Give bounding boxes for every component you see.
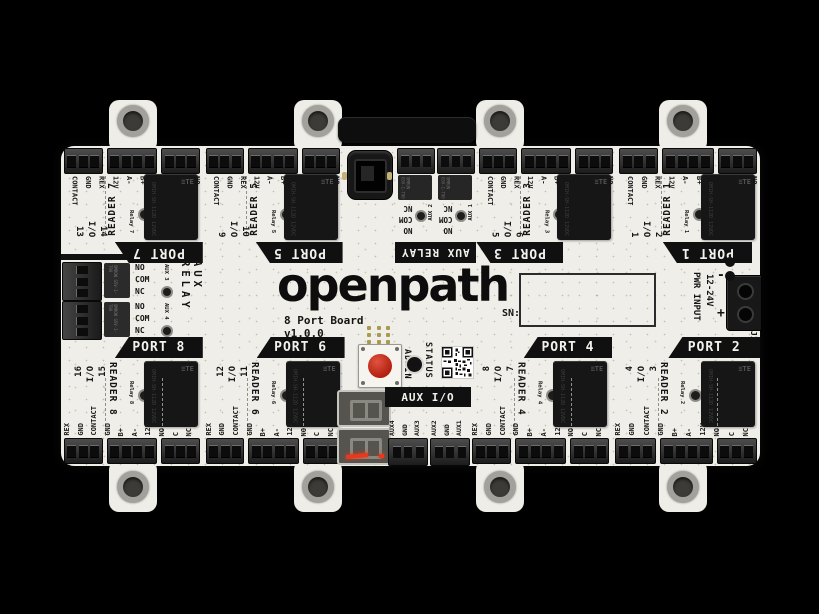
relay-designator: Relay 3: [543, 210, 549, 233]
aux-relay-top-section: OMRON G5V-1-T90 NC COM NO AUX 2 OMRON G5…: [395, 146, 477, 263]
pin-label: GND: [493, 176, 506, 189]
pin-label: 12V: [145, 423, 159, 436]
io-label: I/O: [228, 221, 238, 237]
seven-segment-display: [337, 390, 391, 463]
terminal-block: [107, 148, 158, 174]
pin-label: REX: [647, 176, 661, 189]
pin-label: NO: [135, 301, 149, 313]
relay-brand: ≡TE: [181, 365, 194, 373]
pin-label: B+: [688, 176, 702, 184]
pin-label: GND: [633, 176, 647, 189]
mounting-screw-icon: [302, 471, 334, 503]
port-banner: PORT 1: [663, 242, 752, 263]
relay-part-number: OMRON G5V-1-T90: [441, 177, 451, 200]
pin-label: NC: [399, 203, 413, 213]
relay-brand: ≡TE: [323, 365, 336, 373]
power-connector: [726, 275, 762, 331]
pin-label: CONTACT: [619, 176, 633, 206]
aux-channel-name: AUX 1: [468, 204, 474, 221]
relay-part-number: OMRON G5V-1-T90: [108, 304, 118, 337]
terminal-block: [64, 148, 103, 174]
admin-button-cap: [368, 354, 392, 378]
relay-brand: ≡TE: [738, 365, 751, 373]
pin-label: NC: [743, 428, 757, 436]
pin-label: NO: [568, 428, 582, 436]
silkscreen-bar: [61, 254, 127, 260]
serial-number-box: [519, 273, 656, 327]
terminal-block-row: [472, 438, 609, 464]
top-port-row: CONTACT GND REX 12V A- B+ GND NC C NO 13: [61, 146, 760, 263]
pin-label: NC: [186, 428, 200, 436]
underside-connector: [338, 117, 476, 143]
reader-label: READER 7: [107, 182, 118, 236]
screw-hole: [161, 286, 173, 298]
status-led-label: STATUS: [423, 342, 433, 379]
pin-label: A-: [533, 176, 546, 184]
aux-relay: OMRON G5V-1-T90: [398, 175, 432, 200]
terminal-block: [515, 438, 566, 464]
relay-brand: ≡TE: [321, 178, 334, 186]
pin-label-strip: NO COM NC: [135, 301, 149, 337]
pin-label-strip: NC COM NO: [439, 203, 453, 234]
pin-label-strip: REX GND CONTACT GND B+ A- 12V NO C NC: [615, 376, 757, 436]
relay-brand: ≡TE: [738, 178, 751, 186]
pin-label-strip: REX GND CONTACT GND B+ A- 12V NO C NC: [206, 376, 342, 436]
reader-label: READER 3: [522, 182, 533, 236]
pin-label: GND: [219, 423, 233, 436]
pin-label: COM: [439, 214, 453, 224]
port-name: PORT 8: [132, 340, 185, 355]
terminal-block-row: [619, 148, 757, 174]
terminal-block: [717, 438, 757, 464]
io-label: I/O: [501, 221, 511, 237]
pin-label: A-: [674, 176, 688, 184]
pin-label: CONTACT: [91, 406, 105, 436]
circuit-board: CONTACT GND REX 12V A- B+ GND NC C NO 13: [61, 146, 760, 466]
pin-label: B+: [527, 428, 541, 436]
port-banner: PORT 2: [668, 337, 760, 358]
terminal-block: [302, 148, 340, 174]
pin-label: COM: [135, 274, 149, 286]
pin-label: A-: [541, 428, 555, 436]
terminal-block: [388, 438, 428, 466]
power-positive-mark: +: [717, 306, 725, 321]
pin-label: C: [729, 432, 743, 436]
terminal-block: [107, 438, 158, 464]
board-version: v1.0.0: [284, 327, 363, 340]
aux-relay-channel: OMRON G5V-1-T90 NC COM NO AUX 2: [397, 148, 435, 240]
port-top-1: CONTACT GND REX 12V A- B+ GND NC C NO 9: [203, 146, 343, 263]
pin-label: GND: [658, 423, 672, 436]
serial-number-label: SN:: [502, 308, 520, 319]
relay-brand: ≡TE: [591, 365, 604, 373]
power-input-label: PWR INPUT: [691, 272, 701, 321]
terminal-block-row: [64, 148, 200, 174]
port-banner: PORT 8: [115, 337, 203, 358]
pin-label-strip: NO COM NC: [135, 262, 149, 298]
terminal-block: [161, 438, 200, 464]
aux-channel-name: AUX 3: [163, 264, 169, 281]
pin-label-strip: AUX4 GND AUX3: [388, 409, 426, 436]
pin-label: GND: [629, 423, 643, 436]
pin-label: AUX4: [388, 409, 401, 436]
usb-port-block: [343, 146, 395, 263]
pin-label: A-: [118, 176, 132, 184]
mounting-screw-icon: [117, 471, 149, 503]
pin-label: GND: [78, 176, 92, 189]
aux-relay: OMRON G5V-1-T90: [104, 263, 130, 298]
terminal-block: [430, 438, 470, 466]
pin-label: REX: [64, 423, 78, 436]
lit-decimal-icon: [379, 454, 384, 458]
pin-label: REX: [91, 176, 105, 189]
screw-hole: [455, 210, 467, 222]
io-number: 9: [216, 232, 226, 237]
pin-label: C: [582, 432, 596, 436]
pin-label: NO: [714, 428, 728, 436]
relay-brand: ≡TE: [595, 178, 608, 186]
terminal-block-row: [206, 438, 342, 464]
relay-designator: Relay 5: [270, 210, 276, 233]
pin-label: AUX3: [413, 409, 426, 436]
power-connector-designator: J1: [749, 331, 758, 341]
pcb-product-image: CONTACT GND REX 12V A- B+ GND NC C NO 13: [0, 0, 819, 614]
relay: ≡TE OMIH-SH-112D 12VDC: [144, 174, 198, 240]
aux-relay-left-section: OMRON G5V-1-T90 NO COM NC AUX 3 OMRON G5…: [61, 254, 201, 336]
port-bottom-1: PORT 6 12 I/O 11 READER 6 Relay 6 ≡TE OM…: [203, 337, 345, 466]
relay-designator: Relay 1: [683, 210, 689, 233]
pin-label: REX: [506, 176, 519, 189]
terminal-block: [303, 438, 342, 464]
port-top-0: CONTACT GND REX 12V A- B+ GND NC C NO 13: [61, 146, 203, 263]
silkscreen-divider: [520, 176, 521, 234]
port-banner: PORT 4: [524, 337, 613, 358]
relay-brand: ≡TE: [181, 178, 194, 186]
port-bottom-0: PORT 8 16 I/O 15 READER 8 Relay 8 ≡TE OM…: [61, 337, 203, 466]
pin-label-strip: NC COM NO: [399, 203, 413, 234]
aux-channel-name: AUX 2: [428, 204, 434, 221]
port-name: PORT 4: [541, 340, 594, 355]
pin-label-strip: AUX2 GND AUX1: [430, 409, 468, 436]
io-number: 1: [629, 232, 639, 237]
terminal-block-row: [64, 438, 200, 464]
usb-port-opening-icon: [354, 159, 387, 193]
port-top-3: CONTACT GND REX 12V A- B+ GND NC C NO 1: [616, 146, 760, 263]
status-led: [407, 357, 422, 372]
solder-pad: [387, 172, 392, 180]
relay-part-number: OMIH-SH-112D 12VDC: [563, 182, 569, 236]
relay: ≡TE OMIH-SH-112D 12VDC: [701, 174, 755, 240]
terminal-block: [472, 438, 511, 464]
pin-label: CONTACT: [644, 406, 658, 436]
pin-label: NO: [159, 428, 173, 436]
port-top-2: CONTACT GND REX 12V A- B+ GND NC C NO 5: [476, 146, 616, 263]
terminal-block: [615, 438, 655, 464]
terminal-block: [206, 148, 244, 174]
pin-label-strip: REX GND CONTACT GND B+ A- 12V NO C NC: [64, 376, 200, 436]
io-label: I/O: [641, 221, 651, 237]
terminal-block: [662, 148, 714, 174]
io-number: 5: [489, 232, 499, 237]
pin-label: GND: [443, 409, 456, 436]
terminal-block: [521, 148, 571, 174]
terminal-block: [161, 148, 200, 174]
terminal-block-row: [206, 148, 340, 174]
aux-io-banner: AUX I/O: [385, 387, 471, 407]
pin-label: B+: [260, 428, 274, 436]
io-number: 8: [482, 366, 492, 371]
terminal-block: [575, 148, 613, 174]
qr-code: [442, 347, 473, 378]
power-negative-mark: -: [717, 268, 725, 283]
terminal-block-row: [615, 438, 757, 464]
pin-label: NO: [135, 262, 149, 274]
relay: ≡TE OMIH-SH-112D 12VDC: [284, 174, 338, 240]
pin-label: NC: [135, 325, 149, 337]
aux-relay-channel: OMRON G5V-1-T90 NC COM NO AUX 1: [437, 148, 475, 240]
terminal-block: [62, 262, 102, 301]
display-digit: [337, 428, 391, 465]
pin-label: CONTACT: [479, 176, 492, 206]
terminal-block: [619, 148, 658, 174]
display-digit: [337, 390, 391, 427]
port-bottom-2: PORT 4 8 I/O 7 READER 4 Relay 4 ≡TE OMIH…: [469, 337, 612, 466]
terminal-block: [479, 148, 517, 174]
pin-label: B+: [118, 428, 132, 436]
relay: ≡TE OMIH-SH-112D 12VDC: [557, 174, 611, 240]
pin-label: COM: [399, 214, 413, 224]
pin-label: A-: [259, 176, 272, 184]
pin-label: REX: [233, 176, 246, 189]
solder-pad: [342, 172, 347, 180]
terminal-block: [397, 148, 435, 174]
pin-label: AUX1: [455, 409, 468, 436]
aux-relay-label: AUX RELAY: [179, 260, 203, 336]
io-label: I/O: [86, 221, 96, 237]
aux-io-label: AUX I/O: [401, 391, 454, 404]
port-banner: PORT 6: [257, 337, 345, 358]
io-number: 13: [74, 226, 84, 237]
pin-label: GND: [219, 176, 232, 189]
pin-label-strip: REX GND CONTACT GND B+ A- 12V NO C NC: [472, 376, 609, 436]
port-bottom-3: PORT 2 4 I/O 3 READER 2 Relay 2 ≡TE OMIH…: [612, 337, 760, 466]
terminal-block: [64, 438, 103, 464]
relay-part-number: OMIH-SH-112D 12VDC: [707, 182, 713, 236]
aux-relay: OMRON G5V-1-T90: [104, 302, 130, 337]
power-voltage-label: 12-24V: [704, 274, 714, 307]
relay-part-number: OMRON G5V-1-T90: [108, 265, 118, 298]
pin-label: C: [314, 432, 328, 436]
mounting-screw-icon: [484, 471, 516, 503]
terminal-block: [718, 148, 757, 174]
terminal-block: [248, 438, 299, 464]
screw-hole: [161, 325, 173, 337]
pin-label: B+: [672, 428, 686, 436]
pin-label: GND: [401, 409, 414, 436]
pin-label: AUX2: [430, 409, 443, 436]
pin-label: NC: [439, 203, 453, 213]
mounting-screw-icon: [484, 105, 516, 137]
terminal-block: [437, 148, 475, 174]
screw-hole: [415, 210, 427, 222]
reader-label: READER 5: [249, 182, 260, 236]
board-title-line: 8 Port Board: [284, 314, 363, 327]
pin-label: NC: [135, 286, 149, 298]
io-number: 4: [625, 366, 635, 371]
aux-channel-name: AUX 4: [163, 303, 169, 320]
terminal-block: [660, 438, 713, 464]
mounting-screw-icon: [667, 105, 699, 137]
pin-label: GND: [486, 423, 500, 436]
terminal-block: [62, 301, 102, 340]
unlit-segments-icon: [350, 400, 382, 421]
reader-label: READER 1: [662, 182, 673, 236]
pin-label: COM: [135, 313, 149, 325]
admin-button: [358, 344, 402, 388]
solder-pad: [725, 271, 735, 281]
pin-label: NO: [399, 225, 413, 235]
pin-label: CONTACT: [233, 406, 247, 436]
solder-pad: [725, 257, 735, 267]
mounting-screw-icon: [302, 105, 334, 137]
relay-part-number: OMRON G5V-1-T90: [401, 177, 411, 200]
pin-label: A-: [686, 428, 700, 436]
terminal-block: [570, 438, 609, 464]
pin-label: NC: [596, 428, 610, 436]
aux-relay: OMRON G5V-1-T90: [438, 175, 472, 200]
mounting-screw-icon: [667, 471, 699, 503]
relay-designator: Relay 7: [128, 210, 134, 233]
pin-label: CONTACT: [206, 176, 219, 206]
relay-part-number: OMIH-SH-112D 12VDC: [290, 182, 296, 236]
terminal-block: [206, 438, 245, 464]
board-title: 8 Port Board v1.0.0: [284, 314, 363, 340]
port-name: PORT 2: [688, 340, 741, 355]
relay-part-number: OMIH-SH-112D 12VDC: [150, 182, 156, 236]
mounting-screw-icon: [117, 105, 149, 137]
terminal-block-row: [479, 148, 613, 174]
terminal-block: [248, 148, 298, 174]
brand-logo: openpath: [277, 262, 508, 308]
pin-label: CONTACT: [64, 176, 78, 206]
pin-label: 12V: [287, 423, 301, 436]
pin-label: NO: [439, 225, 453, 235]
port-name: PORT 6: [274, 340, 327, 355]
